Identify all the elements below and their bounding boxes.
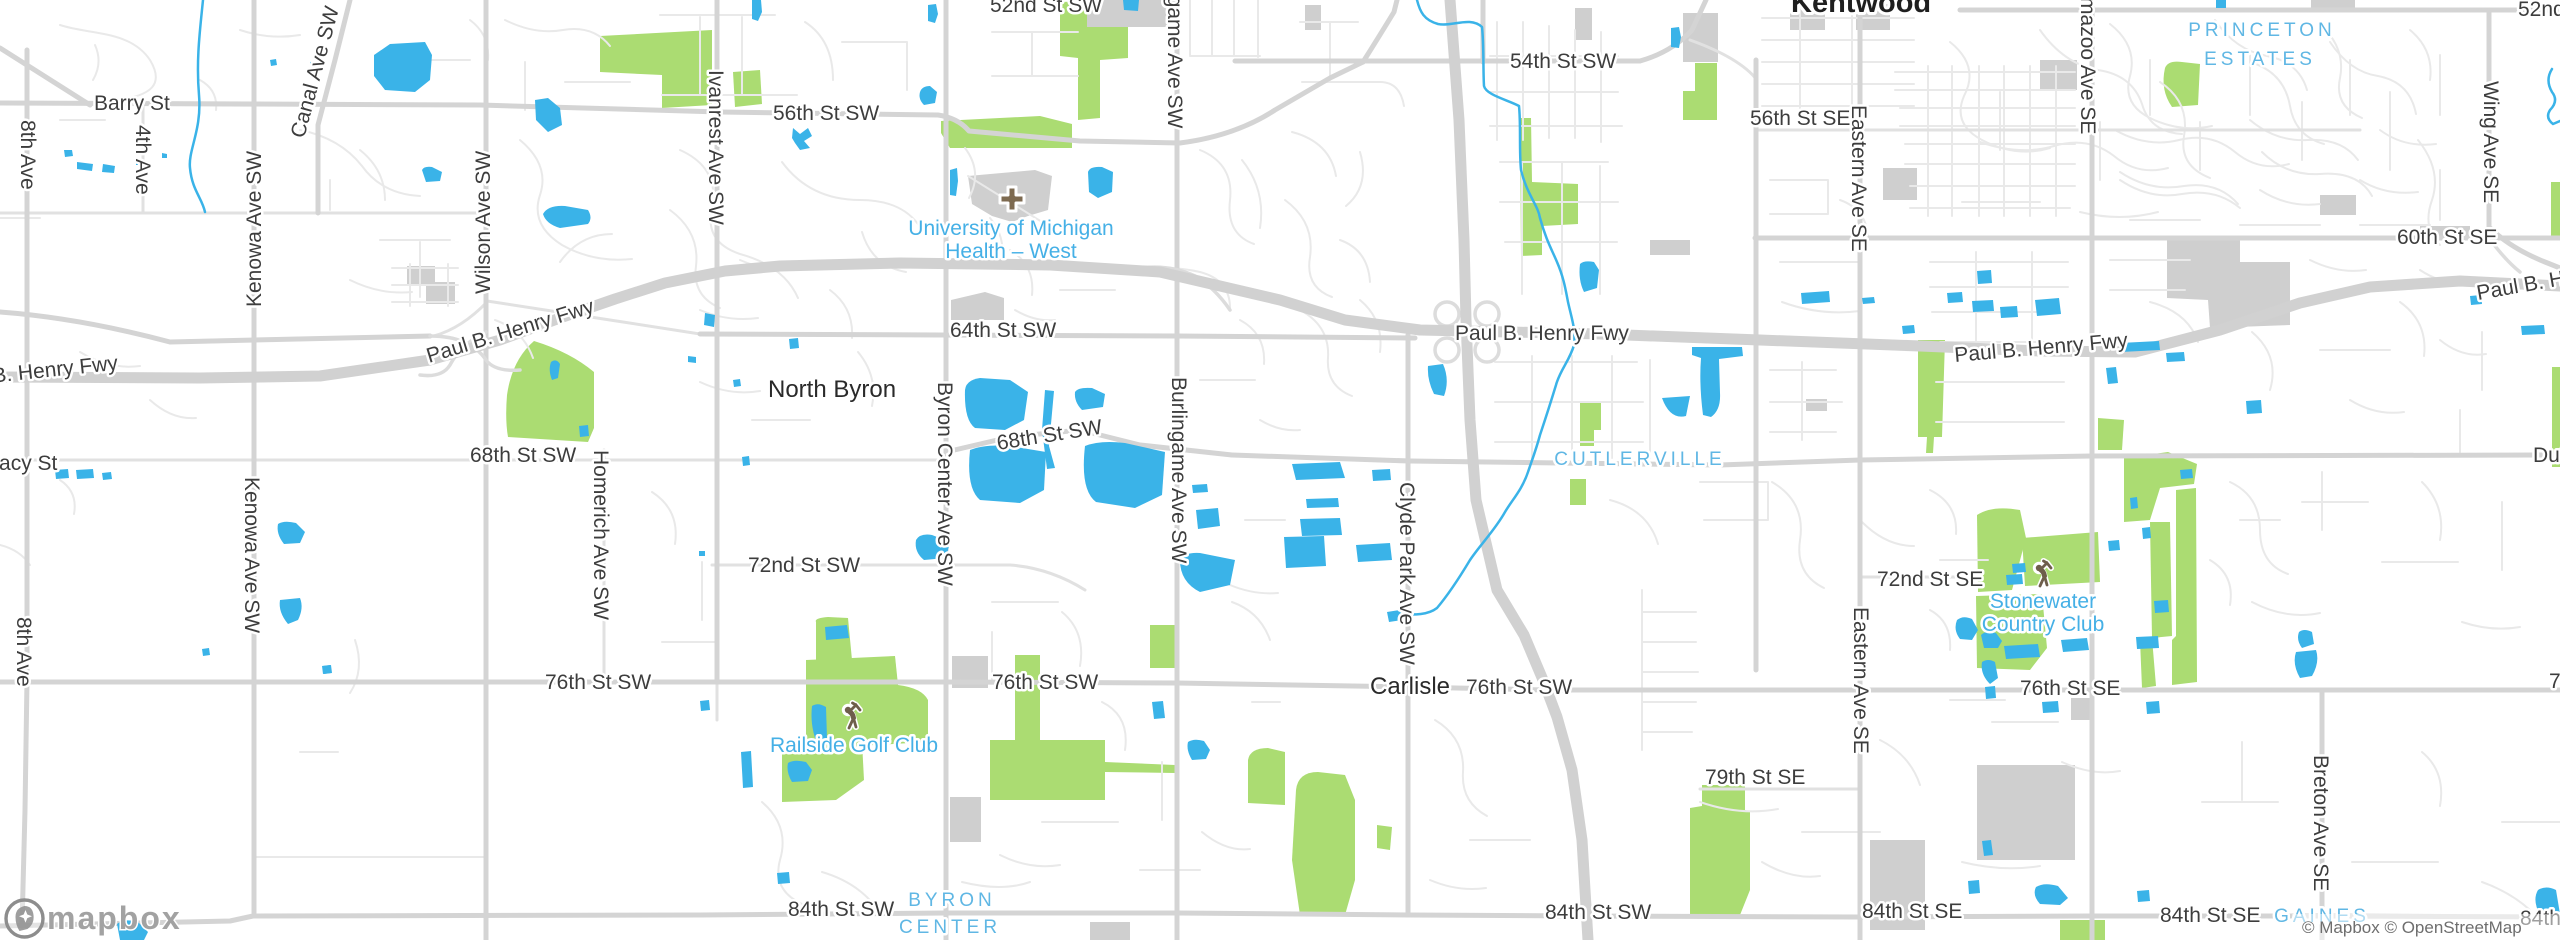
svg-text:76th St SW: 76th St SW xyxy=(545,671,651,694)
svg-text:84th St SW: 84th St SW xyxy=(788,898,894,921)
svg-text:76th St SE: 76th St SE xyxy=(2020,677,2120,700)
svg-text:University of Michigan: University of Michigan xyxy=(908,217,1113,240)
svg-text:ESTATES: ESTATES xyxy=(2204,49,2316,70)
svg-text:Homerich Ave SW: Homerich Ave SW xyxy=(589,450,612,620)
svg-text:Dutton Ave: Dutton Ave xyxy=(2533,444,2560,467)
svg-text:Kalamazoo Ave SE: Kalamazoo Ave SE xyxy=(2076,0,2099,134)
svg-text:Kenowa Ave SW: Kenowa Ave SW xyxy=(240,477,263,633)
svg-text:Carlisle: Carlisle xyxy=(1370,673,1450,700)
svg-text:60th St SE: 60th St SE xyxy=(2397,226,2497,249)
svg-text:Clyde Park Ave SW: Clyde Park Ave SW xyxy=(1395,482,1418,665)
svg-text:Burlingame Ave SW: Burlingame Ave SW xyxy=(1163,0,1186,129)
svg-text:Eastern Ave SE: Eastern Ave SE xyxy=(1849,607,1872,754)
svg-text:52nd St SE: 52nd St SE xyxy=(2518,0,2560,21)
svg-text:76th St SW: 76th St SW xyxy=(992,671,1098,694)
svg-text:Wing Ave SE: Wing Ave SE xyxy=(2479,81,2502,203)
svg-text:76th St SW: 76th St SW xyxy=(1466,676,1572,699)
svg-text:mapbox: mapbox xyxy=(47,900,182,936)
svg-text:54th St SW: 54th St SW xyxy=(1510,50,1616,73)
svg-text:CENTER: CENTER xyxy=(899,917,1001,938)
svg-text:Ivanrest Ave SW: Ivanrest Ave SW xyxy=(704,70,727,225)
svg-text:84th St SE: 84th St SE xyxy=(1862,900,1962,923)
svg-text:Paul B. Henry Fwy: Paul B. Henry Fwy xyxy=(1455,322,1629,345)
svg-text:Eastern Ave SE: Eastern Ave SE xyxy=(1847,105,1870,252)
svg-text:84th St SE: 84th St SE xyxy=(2160,904,2260,927)
svg-text:56th St SE: 56th St SE xyxy=(1750,107,1850,130)
svg-text:76th St SE: 76th St SE xyxy=(2549,670,2560,693)
svg-text:72nd St SE: 72nd St SE xyxy=(1877,568,1983,591)
svg-text:Health – West: Health – West xyxy=(945,240,1077,263)
svg-text:Breton Ave SE: Breton Ave SE xyxy=(2309,755,2332,891)
svg-text:64th St SW: 64th St SW xyxy=(950,319,1056,342)
svg-text:8th Ave: 8th Ave xyxy=(16,120,39,190)
svg-text:Legacy St: Legacy St xyxy=(0,452,58,475)
svg-text:68th St SW: 68th St SW xyxy=(470,444,576,467)
svg-text:4th Ave: 4th Ave xyxy=(131,125,154,195)
svg-text:Railside Golf Club: Railside Golf Club xyxy=(770,734,938,757)
svg-text:PRINCETON: PRINCETON xyxy=(2188,20,2336,41)
svg-text:8th Ave: 8th Ave xyxy=(12,617,35,687)
svg-text:72nd St SW: 72nd St SW xyxy=(748,554,860,577)
svg-text:Kentwood: Kentwood xyxy=(1791,0,1931,19)
svg-text:Country Club: Country Club xyxy=(1982,613,2105,636)
svg-text:© Mapbox © OpenStreetMap: © Mapbox © OpenStreetMap xyxy=(2302,918,2522,937)
svg-text:Stonewater: Stonewater xyxy=(1990,590,2096,613)
svg-text:56th St SW: 56th St SW xyxy=(773,102,879,125)
svg-text:BYRON: BYRON xyxy=(908,890,996,911)
svg-text:84th St SW: 84th St SW xyxy=(1545,901,1651,924)
svg-text:North Byron: North Byron xyxy=(768,376,896,403)
svg-text:Wilson Ave SW: Wilson Ave SW xyxy=(472,151,495,294)
svg-text:52nd St SW: 52nd St SW xyxy=(990,0,1102,17)
svg-text:Burlingame Ave SW: Burlingame Ave SW xyxy=(1167,377,1190,564)
svg-text:79th St SE: 79th St SE xyxy=(1705,766,1805,789)
svg-text:Barry St: Barry St xyxy=(94,92,170,115)
svg-text:Byron Center Ave SW: Byron Center Ave SW xyxy=(933,382,956,586)
svg-text:CUTLERVILLE: CUTLERVILLE xyxy=(1554,449,1725,470)
svg-text:Kenowa Ave SW: Kenowa Ave SW xyxy=(243,151,266,307)
